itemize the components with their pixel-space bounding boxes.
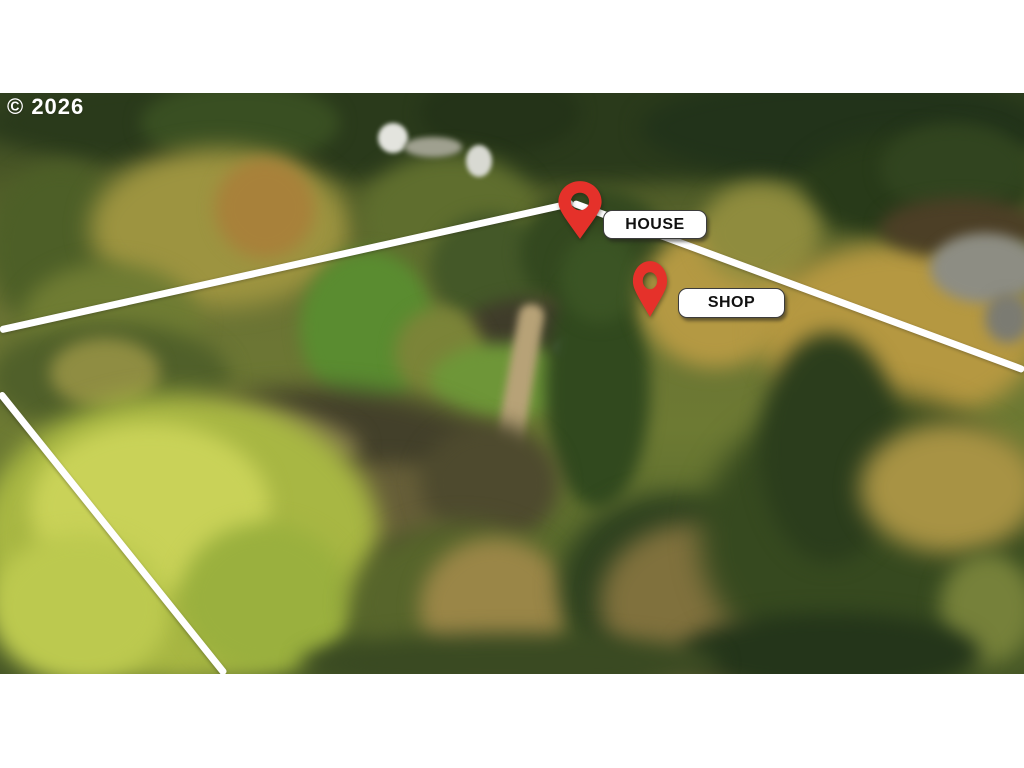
shop-map-pin-icon: [631, 260, 669, 318]
photo-blob: [560, 233, 640, 323]
shop-label: SHOP: [678, 288, 785, 318]
aerial-photo: © 2026 HOUSE SHOP: [0, 93, 1024, 674]
letterbox-top: [0, 0, 1024, 93]
photo-blob: [215, 158, 315, 258]
screenshot-stage: © 2026 HOUSE SHOP: [0, 0, 1024, 768]
house-label-text: HOUSE: [625, 216, 684, 234]
house-label: HOUSE: [603, 210, 707, 239]
photo-blob: [985, 293, 1024, 343]
letterbox-bottom: [0, 674, 1024, 768]
shop-label-text: SHOP: [708, 294, 755, 312]
photo-blob: [404, 137, 462, 157]
copyright-watermark: © 2026: [7, 94, 84, 120]
house-map-pin-icon: [556, 180, 604, 240]
photo-blob: [466, 145, 492, 177]
